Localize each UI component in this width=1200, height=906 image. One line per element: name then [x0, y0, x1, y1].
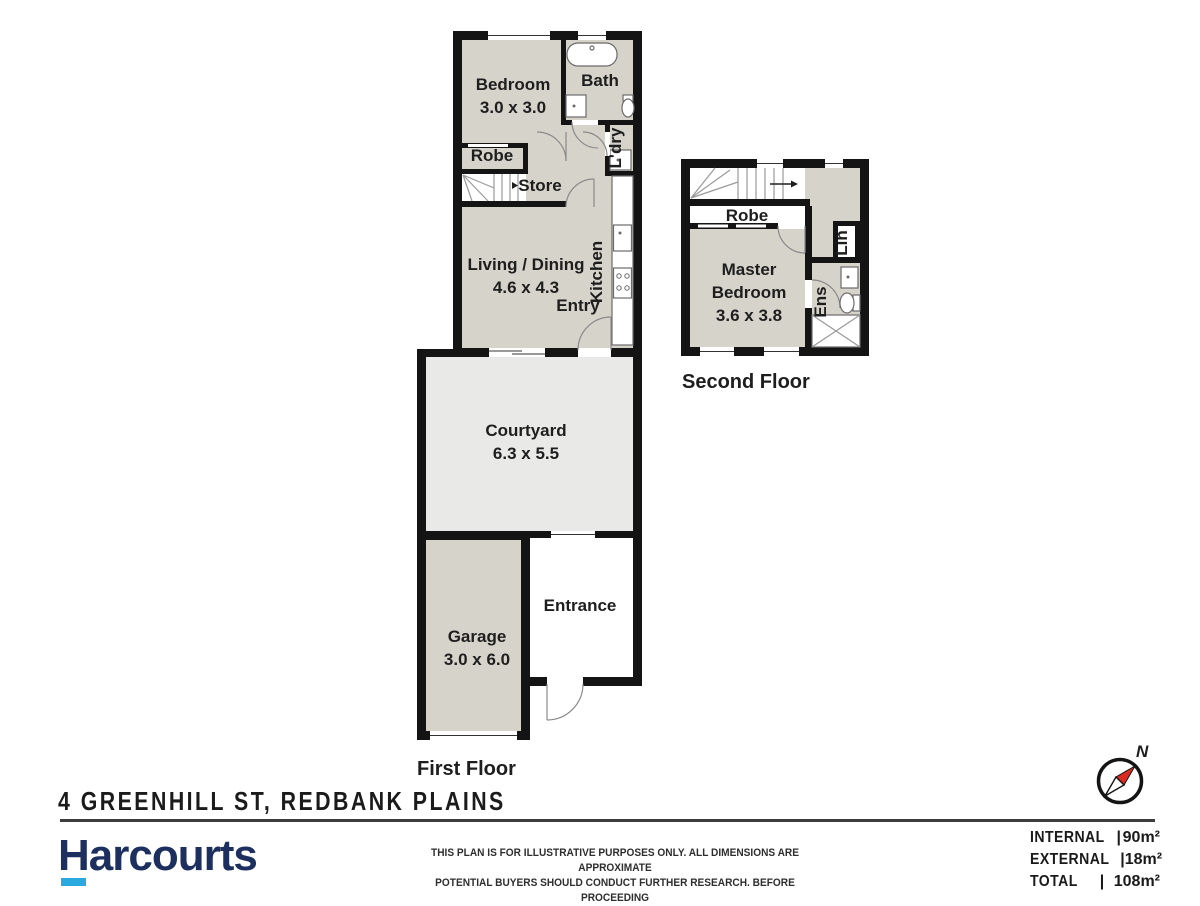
- second-floor-block: [681, 159, 869, 356]
- label-bath: Bath: [581, 71, 619, 90]
- label-kitchen: Kitchen: [587, 241, 606, 303]
- ensuite-toilet: [840, 293, 860, 313]
- compass-north-label: N: [1136, 742, 1149, 761]
- footer-divider: [60, 819, 1155, 822]
- garage-door: [430, 731, 517, 740]
- property-address: 4 GREENHILL ST, REDBANK PLAINS: [58, 786, 506, 817]
- label-courtyard-dims: 6.3 x 5.5: [493, 444, 559, 463]
- label-master-1: Master: [722, 260, 777, 279]
- ensuite-sink: [841, 267, 858, 288]
- area-row-external: EXTERNAL | 18m²: [1030, 851, 1160, 873]
- entrance-block: [521, 531, 642, 720]
- bath-window: [578, 31, 606, 40]
- label-entrance: Entrance: [544, 596, 617, 615]
- bedroom-window: [488, 31, 550, 40]
- label-laundry: L'dry: [606, 127, 625, 168]
- label-garage: Garage: [448, 627, 507, 646]
- label-master-dims: 3.6 x 3.8: [716, 306, 782, 325]
- front-door: [547, 677, 583, 720]
- bathtub: [567, 43, 617, 66]
- floorplan-canvas: Bedroom 3.0 x 3.0 Bath Robe Store L'dry …: [0, 0, 1200, 820]
- entrance-top-opening: [551, 531, 595, 538]
- label-courtyard: Courtyard: [485, 421, 566, 440]
- label-garage-dims: 3.0 x 6.0: [444, 650, 510, 669]
- label-linen: Lin: [832, 230, 851, 256]
- area-label: TOTAL: [1030, 873, 1088, 891]
- first-floor-title: First Floor: [417, 758, 516, 780]
- area-value: 18m²: [1125, 851, 1162, 869]
- area-separator: |: [1115, 829, 1123, 847]
- area-summary: INTERNAL | 90m² EXTERNAL | 18m² TOTAL | …: [1030, 829, 1160, 895]
- label-entry: Entry: [556, 296, 600, 315]
- kitchen-counter: [612, 176, 633, 345]
- label-store: Store: [518, 176, 561, 195]
- ensuite-shower: [812, 315, 860, 347]
- disclaimer: THIS PLAN IS FOR ILLUSTRATIVE PURPOSES O…: [417, 846, 813, 906]
- stairs-second-floor: [690, 168, 805, 199]
- harcourts-logo-underline: [61, 878, 86, 886]
- label-living: Living / Dining: [467, 255, 584, 274]
- bath-toilet: [622, 95, 634, 117]
- compass-icon: N: [1099, 742, 1150, 803]
- courtyard-sliding-door: [489, 348, 545, 357]
- bath-sink: [566, 95, 586, 117]
- label-master-2: Bedroom: [712, 283, 787, 302]
- label-bedroom-dims: 3.0 x 3.0: [480, 98, 546, 117]
- area-separator: |: [1096, 873, 1108, 891]
- area-value: 90m²: [1123, 829, 1160, 847]
- disclaimer-line-1: THIS PLAN IS FOR ILLUSTRATIVE PURPOSES O…: [417, 846, 813, 876]
- stairs-first-floor: [462, 174, 526, 201]
- label-robe: Robe: [471, 146, 514, 165]
- harcourts-logo: Harcourts: [58, 831, 257, 881]
- disclaimer-line-2: POTENTIAL BUYERS SHOULD CONDUCT FURTHER …: [417, 876, 813, 906]
- area-label: INTERNAL: [1030, 829, 1105, 847]
- area-value: 108m²: [1108, 873, 1160, 891]
- label-robe-2f: Robe: [726, 206, 769, 225]
- label-bedroom: Bedroom: [476, 75, 551, 94]
- area-label: EXTERNAL: [1030, 851, 1109, 869]
- area-row-total: TOTAL | 108m²: [1030, 873, 1160, 895]
- label-ensuite: Ens: [811, 286, 830, 317]
- second-floor-title: Second Floor: [682, 371, 810, 393]
- label-living-dims: 4.6 x 4.3: [493, 278, 559, 297]
- area-row-internal: INTERNAL | 90m²: [1030, 829, 1160, 851]
